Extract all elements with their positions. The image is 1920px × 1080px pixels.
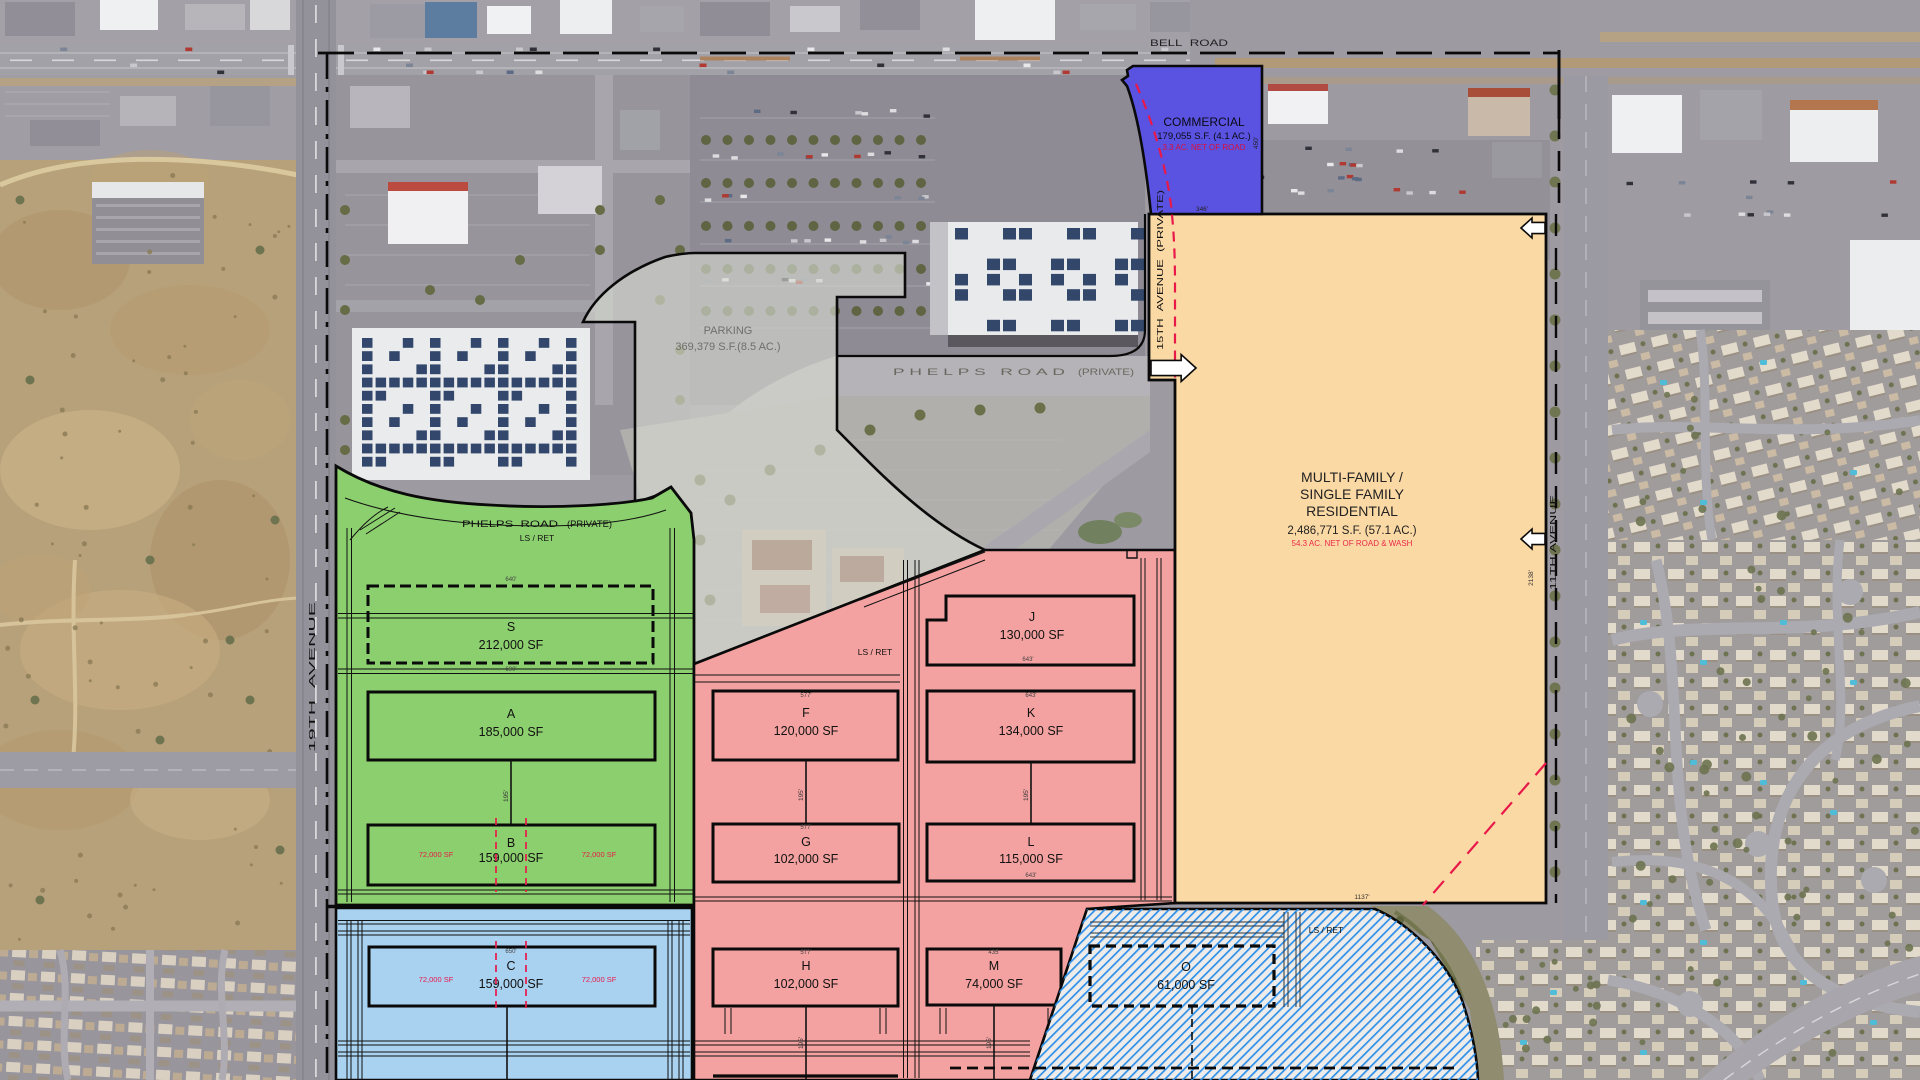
svg-text:S: S [507, 620, 515, 634]
svg-text:72,000 SF: 72,000 SF [582, 850, 617, 859]
svg-text:369,379 S.F.(8.5 AC.): 369,379 S.F.(8.5 AC.) [675, 341, 780, 353]
svg-text:690': 690' [505, 667, 516, 673]
svg-text:LS / RET: LS / RET [858, 647, 892, 657]
svg-text:H: H [801, 959, 810, 973]
svg-text:(PRIVATE): (PRIVATE) [567, 519, 612, 529]
svg-text:179,055 S.F. (4.1 AC.): 179,055 S.F. (4.1 AC.) [1157, 131, 1250, 142]
svg-text:B: B [507, 836, 515, 850]
svg-text:650': 650' [505, 949, 516, 955]
svg-text:M: M [989, 959, 999, 973]
svg-text:RESIDENTIAL: RESIDENTIAL [1306, 503, 1398, 519]
svg-text:72,000 SF: 72,000 SF [419, 975, 454, 984]
svg-text:15TH AVENUE (PRIVATE): 15TH AVENUE (PRIVATE) [1155, 190, 1165, 350]
svg-text:185,000 SF: 185,000 SF [479, 725, 544, 739]
svg-text:PHELPS ROAD: PHELPS ROAD [462, 519, 559, 529]
svg-text:74,000 SF: 74,000 SF [965, 977, 1023, 991]
svg-text:O: O [1181, 960, 1191, 974]
svg-text:195': 195' [798, 789, 805, 801]
svg-text:2138': 2138' [1528, 570, 1535, 586]
svg-text:212,000 SF: 212,000 SF [479, 638, 544, 652]
svg-text:LS / RET: LS / RET [520, 533, 554, 543]
svg-text:3.3 AC. NET OF ROAD: 3.3 AC. NET OF ROAD [1163, 143, 1246, 152]
svg-text:BELL ROAD: BELL ROAD [1150, 38, 1229, 48]
svg-text:102,000 SF: 102,000 SF [774, 977, 839, 991]
svg-text:72,000 SF: 72,000 SF [582, 975, 617, 984]
svg-text:P H E L P S R O A D: P H E L P S R O A D [893, 367, 1065, 378]
svg-text:A: A [507, 707, 516, 721]
svg-text:11TH AVENUE: 11TH AVENUE [1548, 494, 1558, 590]
svg-text:159,000 SF: 159,000 SF [479, 977, 544, 991]
svg-text:LS / RET: LS / RET [1309, 925, 1343, 935]
svg-text:54.3 AC. NET OF ROAD & WASH: 54.3 AC. NET OF ROAD & WASH [1292, 539, 1413, 548]
svg-text:K: K [1027, 706, 1036, 720]
svg-text:C: C [506, 959, 515, 973]
svg-text:J: J [1029, 610, 1035, 624]
svg-text:SINGLE FAMILY: SINGLE FAMILY [1300, 486, 1405, 502]
svg-text:PARKING: PARKING [704, 325, 753, 337]
svg-text:577': 577' [800, 693, 811, 699]
svg-text:195': 195' [798, 1037, 805, 1049]
svg-text:643': 643' [1025, 873, 1036, 879]
svg-text:(PRIVATE): (PRIVATE) [1078, 367, 1134, 378]
svg-text:2,486,771 S.F. (57.1 AC.): 2,486,771 S.F. (57.1 AC.) [1287, 525, 1416, 537]
svg-text:643': 643' [1025, 693, 1036, 699]
svg-text:115,000 SF: 115,000 SF [999, 852, 1063, 866]
svg-text:1137': 1137' [1354, 894, 1369, 901]
svg-text:19TH AVENUE: 19TH AVENUE [307, 601, 317, 752]
svg-text:72,000 SF: 72,000 SF [419, 850, 454, 859]
svg-text:134,000 SF: 134,000 SF [999, 724, 1064, 738]
svg-text:195': 195' [503, 790, 510, 802]
svg-text:640': 640' [505, 577, 516, 583]
svg-text:195': 195' [1023, 789, 1030, 801]
svg-text:102,000 SF: 102,000 SF [774, 852, 839, 866]
svg-text:643': 643' [1022, 657, 1033, 663]
svg-text:346': 346' [1196, 206, 1208, 213]
svg-text:130,000 SF: 130,000 SF [1000, 628, 1065, 642]
svg-text:195': 195' [986, 1037, 993, 1049]
svg-text:435': 435' [988, 950, 999, 956]
svg-text:159,000 SF: 159,000 SF [479, 851, 544, 865]
svg-text:L: L [1028, 835, 1035, 849]
svg-text:450': 450' [1253, 137, 1260, 149]
svg-text:61,000 SF: 61,000 SF [1157, 978, 1215, 992]
svg-text:577': 577' [800, 825, 811, 831]
svg-text:COMMERCIAL: COMMERCIAL [1163, 115, 1245, 129]
svg-text:G: G [801, 835, 811, 849]
svg-text:577': 577' [800, 950, 811, 956]
svg-text:F: F [802, 706, 810, 720]
svg-text:MULTI-FAMILY /: MULTI-FAMILY / [1301, 469, 1403, 485]
svg-text:120,000 SF: 120,000 SF [774, 724, 839, 738]
